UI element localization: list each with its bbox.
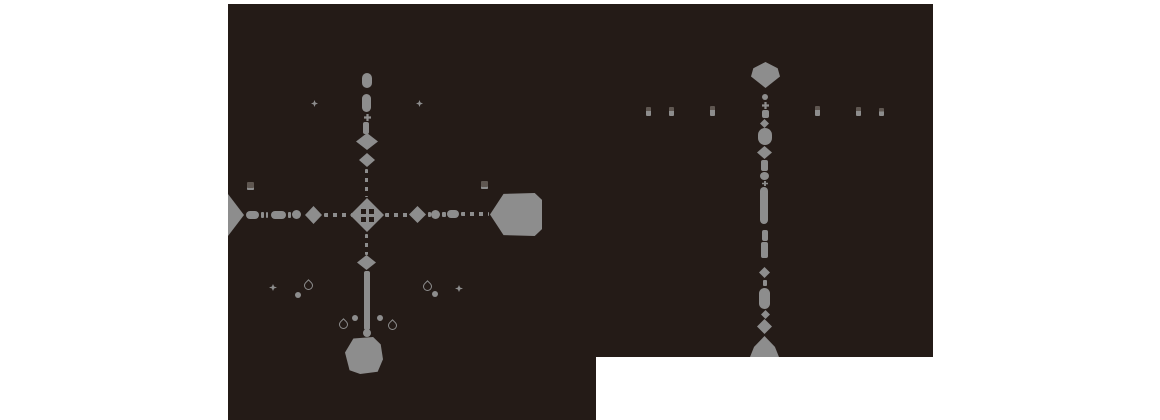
left-route-segment: [363, 122, 369, 134]
left-route-north-terminal: [362, 73, 372, 88]
tick-marker-icon: [856, 107, 861, 116]
route-segment: [758, 128, 772, 145]
route-dash: [266, 212, 268, 218]
junction-grid-pattern: [361, 209, 366, 214]
route-dash: [442, 212, 446, 217]
route-node-dot: [762, 94, 768, 100]
route-node-dot: [292, 210, 301, 219]
dashed-path: [461, 212, 489, 216]
route-segment: [761, 242, 768, 258]
route-segment: [271, 211, 286, 219]
dot-marker-icon: [377, 315, 383, 321]
solid-path: [364, 271, 370, 330]
dark-panel: [228, 357, 596, 420]
route-node-dot: [363, 329, 371, 337]
tick-marker-icon: [879, 108, 884, 116]
route-segment: [759, 288, 770, 309]
dashed-path: [365, 169, 368, 197]
tick-marker-icon: [710, 106, 715, 116]
tick-marker-icon: [815, 106, 820, 116]
route-segment: [761, 160, 768, 171]
dot-marker-icon: [352, 315, 358, 321]
route-segment: [246, 211, 259, 219]
map-canvas: [0, 0, 1160, 420]
route-segment: [762, 230, 768, 241]
dot-marker-icon: [295, 292, 301, 298]
dashed-path: [385, 213, 409, 217]
route-segment: [447, 210, 459, 218]
route-dash: [763, 280, 767, 286]
dark-panel: [228, 4, 933, 357]
route-node-dot: [431, 210, 440, 219]
route-segment: [762, 110, 769, 118]
route-dash: [261, 212, 264, 218]
building-marker-icon: [247, 182, 254, 190]
dashed-path: [324, 213, 352, 217]
left-route-segment: [362, 94, 371, 112]
route-dash: [288, 212, 291, 218]
dot-marker-icon: [432, 291, 438, 297]
building-marker-icon: [481, 181, 488, 189]
route-segment: [760, 187, 768, 224]
tick-marker-icon: [669, 107, 674, 116]
route-node-dot: [760, 172, 769, 180]
tick-marker-icon: [646, 107, 651, 116]
dashed-path: [365, 234, 368, 255]
